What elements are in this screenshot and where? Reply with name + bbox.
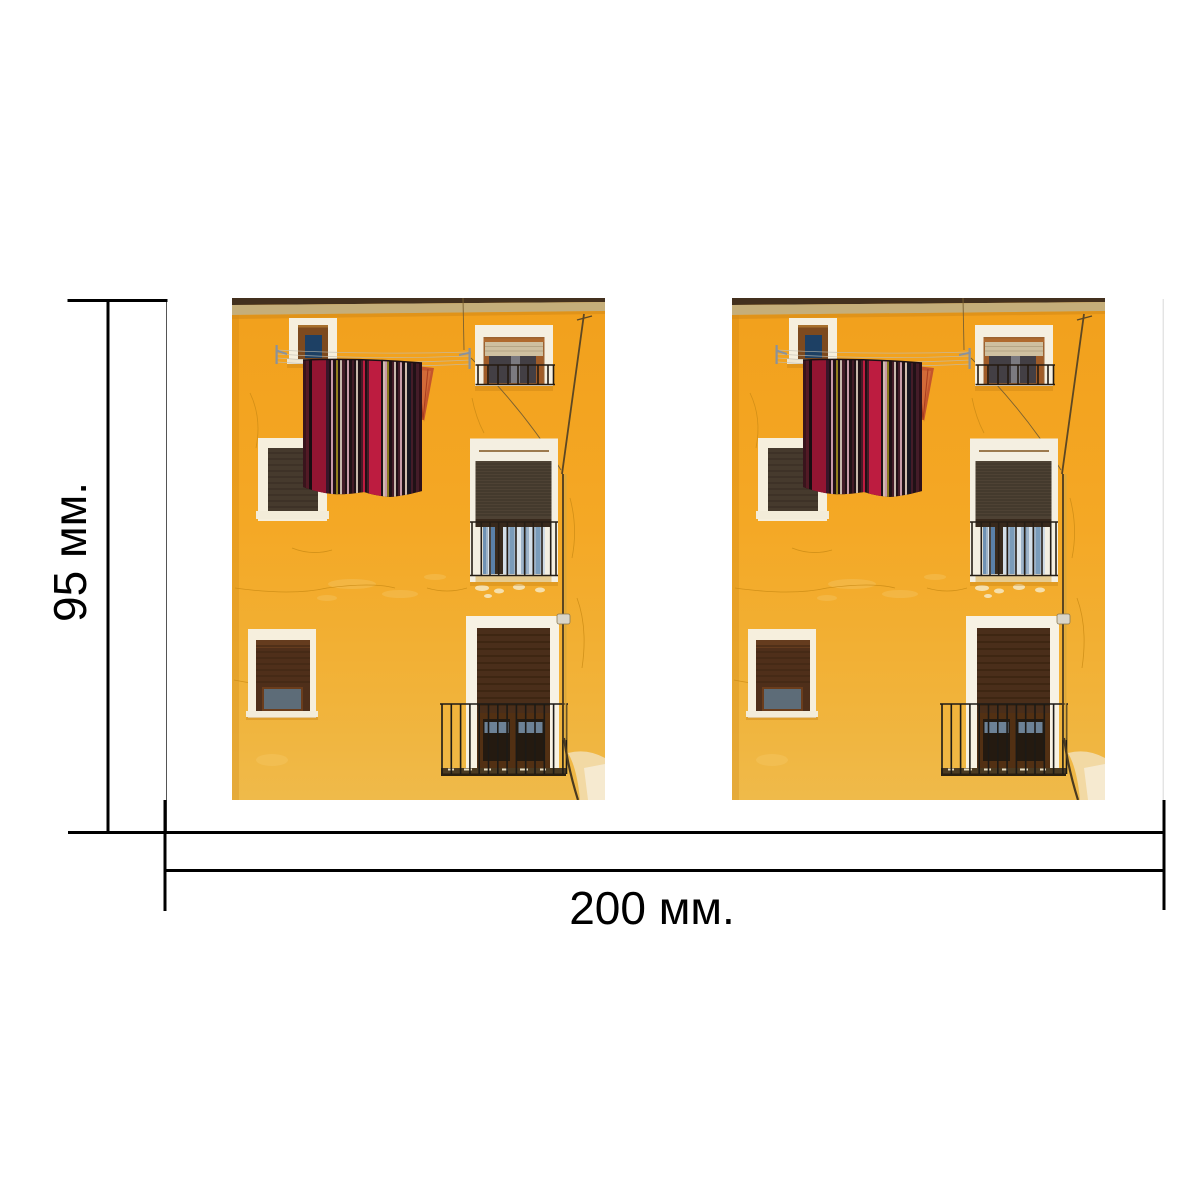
svg-text:95 мм.: 95 мм. [44, 482, 96, 622]
svg-text:200 мм.: 200 мм. [569, 882, 735, 934]
